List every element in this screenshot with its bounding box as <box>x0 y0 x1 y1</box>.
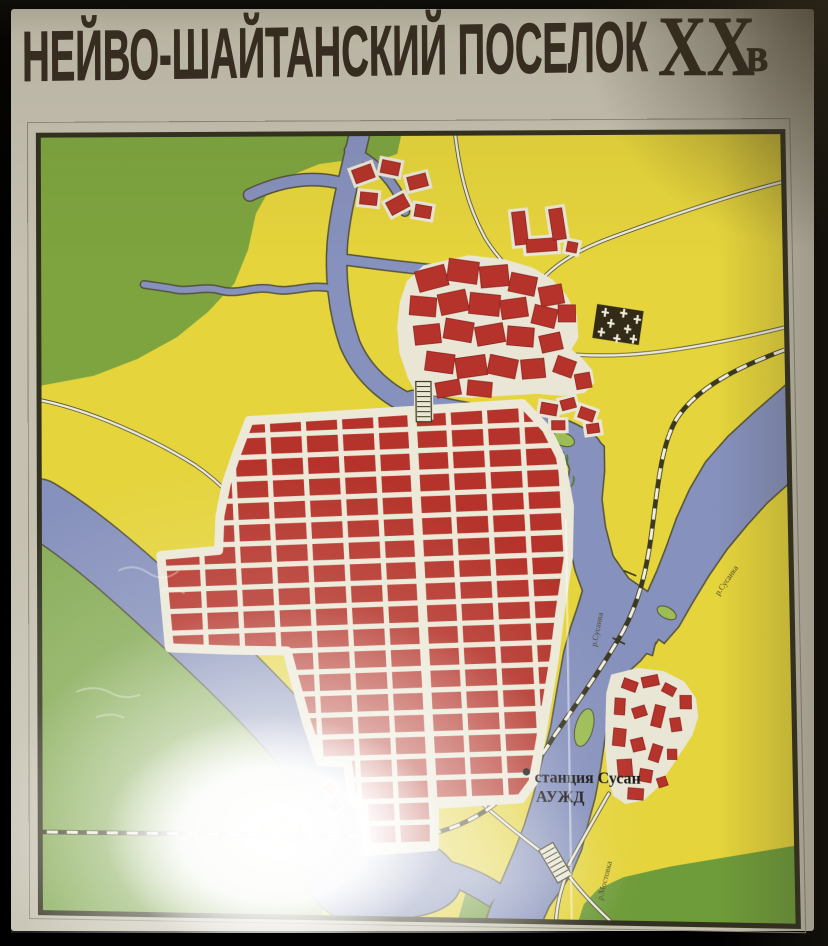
svg-text:станция Сусан: станция Сусан <box>535 769 642 788</box>
svg-text:АУЖД: АУЖД <box>536 788 585 807</box>
